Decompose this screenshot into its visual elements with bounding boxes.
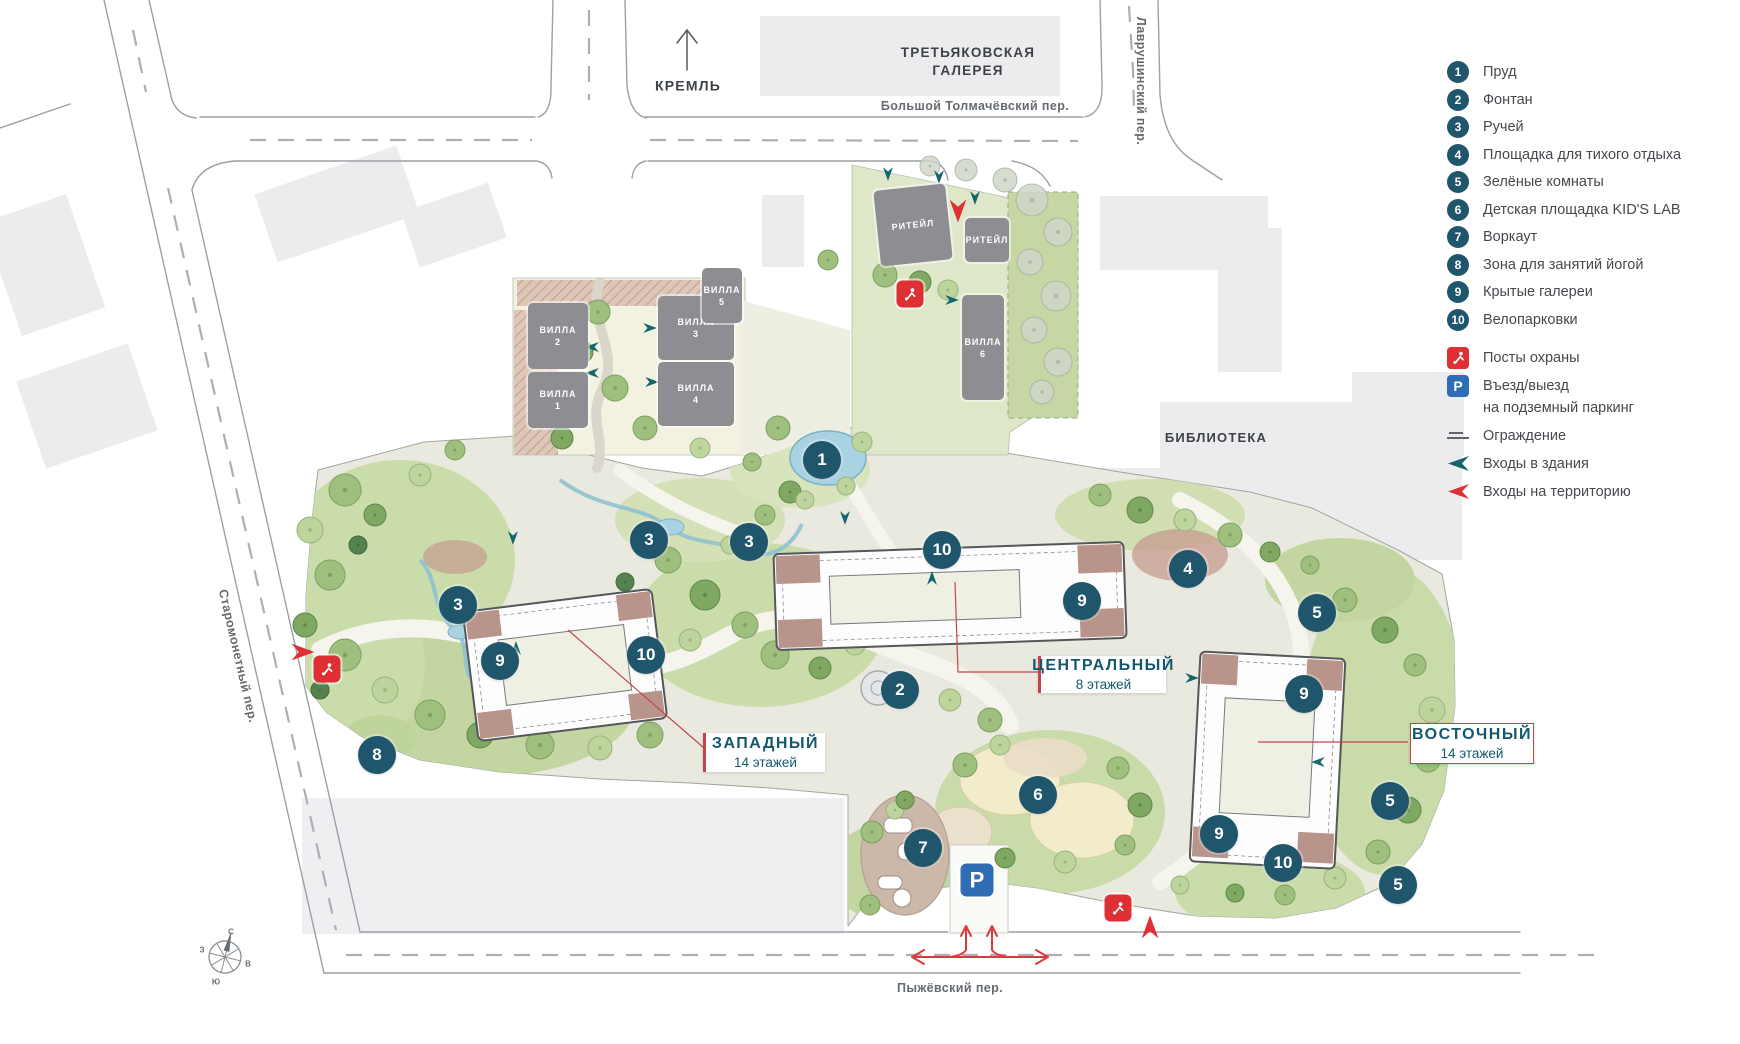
map-marker-3: 3: [630, 521, 668, 559]
map-marker-5: 5: [1371, 782, 1409, 820]
building-entry-arrow-icon: [1448, 456, 1469, 471]
villa-4-block: ВИЛЛА4: [658, 362, 734, 426]
legend-item-7: 7Воркаут: [1447, 226, 1737, 248]
security-post-icon: [314, 656, 341, 683]
gallery-label: ТРЕТЬЯКОВСКАЯ ГАЛЕРЕЯ: [901, 44, 1035, 80]
map-marker-5: 5: [1379, 866, 1417, 904]
street-north-label: Большой Толмачёвский пер.: [881, 99, 1069, 113]
villa-6-block: ВИЛЛА6: [962, 295, 1004, 400]
map-marker-9: 9: [1063, 582, 1101, 620]
legend-symbol-entry-territory: Входы на территорию: [1447, 481, 1737, 503]
map-marker-8: 8: [358, 736, 396, 774]
villa-1-block: ВИЛЛА1: [528, 372, 588, 428]
parking-icon: P: [1447, 375, 1469, 397]
legend-circle-8: 8: [1447, 254, 1469, 276]
legend-symbol-entry-building: Входы в здания: [1447, 453, 1737, 475]
street-east-label: Лаврушинский пер.: [1134, 17, 1148, 145]
legend-numbered-items: 1Пруд2Фонтан3Ручей4Площадка для тихого о…: [1447, 61, 1737, 331]
legend-circle-6: 6: [1447, 199, 1469, 221]
legend-item-1: 1Пруд: [1447, 61, 1737, 83]
map-marker-10: 10: [923, 531, 961, 569]
kremlin-label: КРЕМЛЬ: [655, 77, 721, 96]
territory-entry-arrow-icon: [1448, 484, 1469, 499]
legend-item-8: 8Зона для занятий йогой: [1447, 254, 1737, 276]
map-marker-9: 9: [1285, 675, 1323, 713]
legend-item-4: 4Площадка для тихого отдыха: [1447, 144, 1737, 166]
legend-item-10: 10Велопарковки: [1447, 309, 1737, 331]
legend-circle-9: 9: [1447, 281, 1469, 303]
map-marker-6: 6: [1019, 776, 1057, 814]
legend-circle-2: 2: [1447, 89, 1469, 111]
building-entry-arrow: [934, 170, 944, 184]
map-marker-3: 3: [730, 523, 768, 561]
masterplan-map: КРЕМЛЬ ТРЕТЬЯКОВСКАЯ ГАЛЕРЕЯ БИБЛИОТЕКА …: [0, 0, 1740, 1044]
legend-circle-1: 1: [1447, 61, 1469, 83]
legend-circle-3: 3: [1447, 116, 1469, 138]
map-marker-3: 3: [439, 586, 477, 624]
map-marker-7: 7: [904, 829, 942, 867]
villa-2-block: ВИЛЛА2: [528, 303, 588, 369]
territory-entry-arrow: [1142, 915, 1159, 938]
map-marker-5: 5: [1298, 594, 1336, 632]
fence-icon: [1447, 429, 1469, 442]
compass-north-label: С: [228, 928, 234, 937]
legend-circle-7: 7: [1447, 226, 1469, 248]
compass-rose: [206, 927, 247, 976]
security-post-icon: [1105, 895, 1132, 922]
map-marker-1: 1: [803, 441, 841, 479]
tower-label-west: ЗАПАДНЫЙ 14 этажей: [703, 733, 825, 772]
map-marker-10: 10: [627, 636, 665, 674]
north-arrow-kremlin: [677, 30, 697, 70]
legend-item-6: 6Детская площадка KID'S LAB: [1447, 199, 1737, 221]
map-marker-9: 9: [1200, 815, 1238, 853]
villa-5-block: ВИЛЛА5: [702, 268, 742, 323]
street-south-label: Пыжёвский пер.: [897, 981, 1003, 995]
parking-entrance-icon: P: [961, 864, 994, 897]
legend-item-3: 3Ручей: [1447, 116, 1737, 138]
security-post-icon: [897, 281, 924, 308]
legend-circle-5: 5: [1447, 171, 1469, 193]
legend-symbol-items: Посты охраныPВъезд/выездна подземный пар…: [1447, 347, 1737, 503]
security-post-icon: [1447, 347, 1469, 369]
legend-circle-4: 4: [1447, 144, 1469, 166]
legend-symbol-guard: Посты охраны: [1447, 347, 1737, 369]
tower-label-central: ЦЕНТРАЛЬНЫЙ 8 этажей: [1038, 656, 1166, 693]
compass-south-label: Ю: [212, 978, 220, 987]
map-marker-10: 10: [1264, 844, 1302, 882]
legend: 1Пруд2Фонтан3Ручей4Площадка для тихого о…: [1447, 61, 1737, 509]
retail-2-block: РИТЕЙЛ: [965, 218, 1009, 262]
legend-circle-10: 10: [1447, 309, 1469, 331]
legend-item-2: 2Фонтан: [1447, 89, 1737, 111]
legend-symbol-fence: Ограждение: [1447, 425, 1737, 447]
map-marker-9: 9: [481, 642, 519, 680]
legend-item-5: 5Зелёные комнаты: [1447, 171, 1737, 193]
legend-item-9: 9Крытые галереи: [1447, 281, 1737, 303]
library-label: БИБЛИОТЕКА: [1165, 429, 1267, 447]
map-marker-2: 2: [881, 671, 919, 709]
tower-label-east: ВОСТОЧНЫЙ 14 этажей: [1410, 723, 1534, 764]
retail-1-block: РИТЕЙЛ: [873, 183, 953, 266]
compass-east-label: В: [245, 960, 251, 969]
map-marker-4: 4: [1169, 550, 1207, 588]
legend-symbol-parking: PВъезд/выездна подземный паркинг: [1447, 375, 1737, 419]
compass-west-label: З: [199, 946, 204, 955]
